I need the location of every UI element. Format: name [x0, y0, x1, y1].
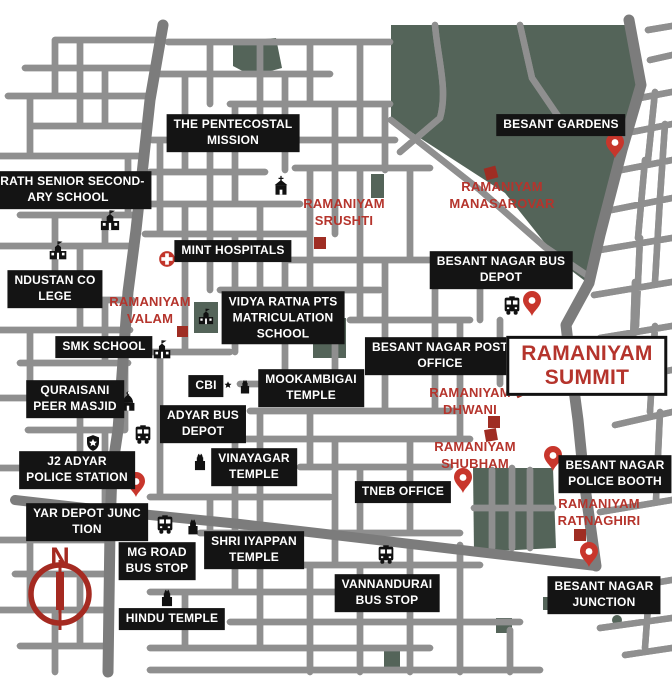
label-besant-nagar-bus-depot: BESANT NAGAR BUSDEPOT: [430, 251, 573, 289]
label-line: LEGE: [14, 289, 95, 305]
church-icon: [270, 175, 292, 197]
label-line: MATRICULATION: [229, 310, 338, 326]
marker-ramaniyam-srushti: [314, 237, 326, 249]
label-ramaniyam-summit: RAMANIYAMSUMMIT: [506, 336, 667, 396]
label-line: J2 ADYAR: [26, 454, 128, 470]
marker-ramaniyam-ratnaghiri: [574, 529, 586, 541]
label-line: NDUSTAN CO: [14, 273, 95, 289]
label-vidya-ratna-pts-matriculation-school: VIDYA RATNA PTSMATRICULATIONSCHOOL: [222, 291, 345, 344]
label-line: RAMANIYAM: [434, 439, 516, 456]
temple-icon: [156, 586, 178, 608]
label-line: SRUSHTI: [303, 213, 385, 230]
label-line: SCHOOL: [229, 326, 338, 342]
label-line: RAMANIYAM: [521, 342, 652, 366]
label-line: PEER MASJID: [33, 399, 117, 415]
label-line: TEMPLE: [211, 550, 297, 566]
school-icon: [197, 308, 215, 326]
label-vannandurai-bus-stop: VANNANDURAIBUS STOP: [335, 574, 440, 612]
label-line: DEPOT: [437, 270, 566, 286]
label-line: TNEB OFFICE: [362, 484, 444, 500]
label-ramaniyam-valam: RAMANIYAMVALAM: [109, 294, 191, 328]
temple-icon: [236, 377, 254, 395]
label-arath-senior-secondary-school: ARATH SENIOR SECOND-ARY SCHOOL: [0, 171, 152, 209]
temple-icon: [189, 450, 211, 472]
label-line: YAR DEPOT JUNC: [33, 506, 141, 522]
label-line: ADYAR BUS: [167, 408, 239, 424]
school-icon: [99, 210, 122, 233]
label-hindu-temple: HINDU TEMPLE: [119, 608, 225, 630]
label-line: MANASAROVAR: [449, 196, 554, 213]
label-line: RATNAGHIRI: [558, 513, 641, 530]
label-line: CBI: [195, 378, 216, 394]
label-line: MINT HOSPITALS: [181, 243, 284, 259]
street-map: N THE PENTECOSTALMISSIONBESANT GARDENSAR…: [0, 0, 672, 700]
label-line: POLICE BOOTH: [565, 474, 664, 490]
label-line: HINDU TEMPLE: [126, 611, 218, 627]
label-line: SHUBHAM: [434, 456, 516, 473]
bus-icon: [154, 513, 176, 535]
bus-icon: [501, 294, 523, 316]
label-besant-nagar-police-booth: BESANT NAGARPOLICE BOOTH: [558, 455, 671, 493]
label-yar-depot-junction: YAR DEPOT JUNCTION: [26, 503, 148, 541]
label-line: BUS STOP: [342, 593, 433, 609]
label-line: VALAM: [109, 311, 191, 328]
label-line: SMK SCHOOL: [62, 339, 145, 355]
label-vinayagar-temple: VINAYAGARTEMPLE: [211, 448, 297, 486]
label-line: VINAYAGAR: [218, 451, 290, 467]
temple-icon: [183, 516, 203, 536]
pin-besant-nagar-junction: [579, 541, 599, 567]
label-mg-road-bus-stop: MG ROADBUS STOP: [119, 542, 196, 580]
label-line: RAMANIYAM: [558, 496, 641, 513]
label-line: BUS STOP: [126, 561, 189, 577]
label-j2-adyar-police-station: J2 ADYARPOLICE STATION: [19, 451, 135, 489]
label-line: VANNANDURAI: [342, 577, 433, 593]
label-line: QURAISANI: [33, 383, 117, 399]
label-line: VIDYA RATNA PTS: [229, 294, 338, 310]
label-shri-iyappan-temple: SHRI IYAPPANTEMPLE: [204, 531, 304, 569]
label-line: BESANT GARDENS: [503, 117, 618, 133]
label-line: BESANT NAGAR: [554, 579, 653, 595]
label-ramaniyam-srushti: RAMANIYAMSRUSHTI: [303, 196, 385, 230]
label-line: OFFICE: [372, 356, 508, 372]
label-the-pentecostal-mission: THE PENTECOSTALMISSION: [167, 114, 300, 152]
label-line: DHWANI: [429, 402, 511, 419]
label-line: ARATH SENIOR SECOND-: [0, 174, 145, 190]
label-mookambigai-temple: MOOKAMBIGAITEMPLE: [258, 369, 364, 407]
label-line: RAMANIYAM: [449, 179, 554, 196]
label-besant-gardens: BESANT GARDENS: [496, 114, 625, 136]
label-besant-nagar-post-office: BESANT NAGAR POSTOFFICE: [365, 337, 515, 375]
label-line: DEPOT: [167, 424, 239, 440]
label-quraisani-peer-masjid: QURAISANIPEER MASJID: [26, 380, 124, 418]
label-line: THE PENTECOSTAL: [174, 117, 293, 133]
label-ramaniyam-manasarovar: RAMANIYAMMANASAROVAR: [449, 179, 554, 213]
bus-icon: [132, 423, 154, 445]
label-line: MG ROAD: [126, 545, 189, 561]
label-ramaniyam-ratnaghiri: RAMANIYAMRATNAGHIRI: [558, 496, 641, 530]
label-line: SUMMIT: [521, 366, 652, 390]
bus-icon: [375, 543, 397, 565]
label-line: POLICE STATION: [26, 470, 128, 486]
label-tneb-office: TNEB OFFICE: [355, 481, 451, 503]
label-ramaniyam-shubham: RAMANIYAMSHUBHAM: [434, 439, 516, 473]
label-line: MOOKAMBIGAI: [265, 372, 357, 388]
label-mint-hospitals: MINT HOSPITALS: [174, 240, 291, 262]
label-smk-school: SMK SCHOOL: [55, 336, 152, 358]
label-line: TEMPLE: [218, 467, 290, 483]
label-line: BESANT NAGAR: [565, 458, 664, 474]
label-line: BESANT NAGAR POST: [372, 340, 508, 356]
label-cbi: CBI: [188, 375, 223, 397]
label-line: RAMANIYAM: [109, 294, 191, 311]
label-besant-nagar-junction: BESANT NAGARJUNCTION: [547, 576, 660, 614]
label-line: MISSION: [174, 133, 293, 149]
label-line: ARY SCHOOL: [0, 190, 145, 206]
school-icon: [152, 340, 173, 361]
label-line: SHRI IYAPPAN: [211, 534, 297, 550]
label-line: BESANT NAGAR BUS: [437, 254, 566, 270]
label-hindustan-college: NDUSTAN COLEGE: [7, 270, 102, 308]
label-line: JUNCTION: [554, 595, 653, 611]
pin-besant-nagar-bus-depot: [522, 290, 542, 316]
label-line: TEMPLE: [265, 388, 357, 404]
label-adyar-bus-depot: ADYAR BUSDEPOT: [160, 405, 246, 443]
school-icon: [48, 241, 69, 262]
label-ramaniyam-dhwani: RAMANIYAMDHWANI: [429, 385, 511, 419]
label-line: RAMANIYAM: [303, 196, 385, 213]
police-badge-icon: [84, 434, 102, 452]
label-line: TION: [33, 522, 141, 538]
label-line: RAMANIYAM: [429, 385, 511, 402]
